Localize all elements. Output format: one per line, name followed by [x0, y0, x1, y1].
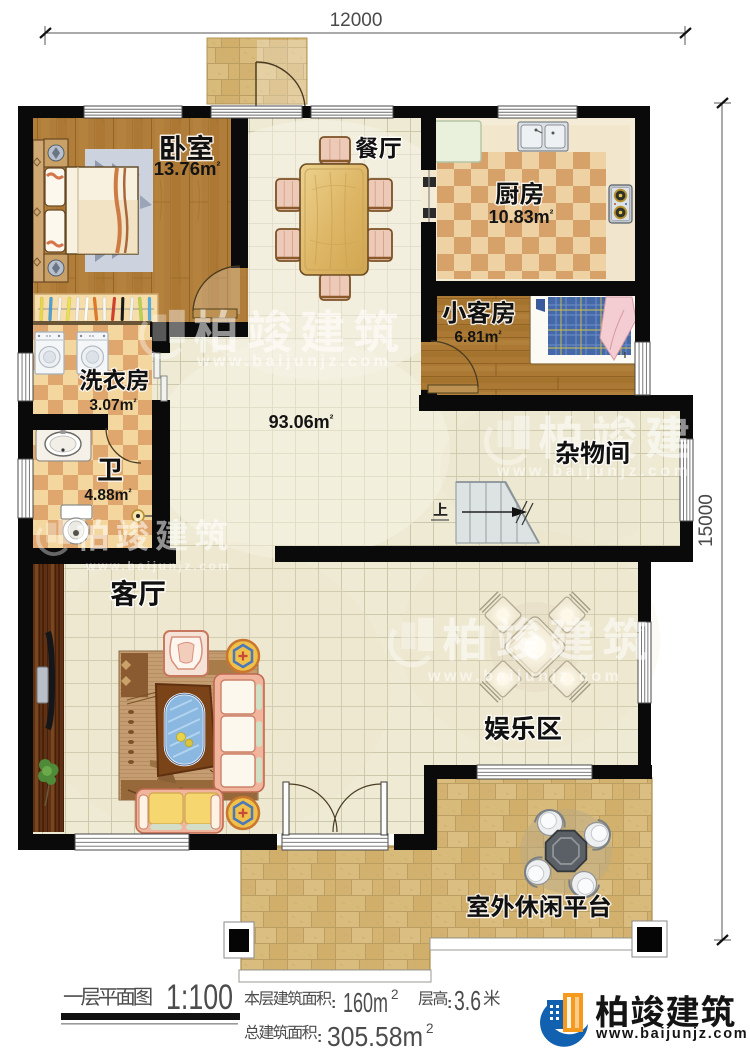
svg-text:13.76m²: 13.76m²: [154, 158, 221, 179]
svg-text:2: 2: [426, 1021, 434, 1036]
svg-text:www.baijunjz.com: www.baijunjz.com: [595, 1026, 748, 1042]
svg-text:3.6: 3.6: [454, 985, 481, 1016]
svg-text:www.baijunjz.com: www.baijunjz.com: [196, 353, 391, 370]
svg-text:93.06m²: 93.06m²: [269, 412, 334, 432]
svg-text:www.baijunjz.com: www.baijunjz.com: [427, 668, 622, 685]
svg-text:10.83m²: 10.83m²: [489, 207, 554, 227]
svg-text:160m: 160m: [343, 987, 388, 1018]
svg-text::: :: [447, 995, 452, 1012]
svg-text:2: 2: [391, 987, 399, 1002]
svg-text:1:100: 1:100: [166, 978, 233, 1017]
svg-text:305.58m: 305.58m: [327, 1021, 423, 1052]
svg-text:4.88m²: 4.88m²: [84, 487, 131, 504]
svg-text:15000: 15000: [696, 494, 717, 547]
svg-text:12000: 12000: [330, 10, 383, 31]
svg-text:www.baijunjz.com: www.baijunjz.com: [496, 463, 691, 480]
svg-text::: :: [331, 995, 336, 1012]
svg-text:www.baijunjz.com: www.baijunjz.com: [85, 559, 232, 573]
svg-text:3.07m²: 3.07m²: [89, 397, 136, 414]
svg-text::: :: [317, 1029, 322, 1046]
svg-text:6.81m²: 6.81m²: [454, 329, 501, 346]
